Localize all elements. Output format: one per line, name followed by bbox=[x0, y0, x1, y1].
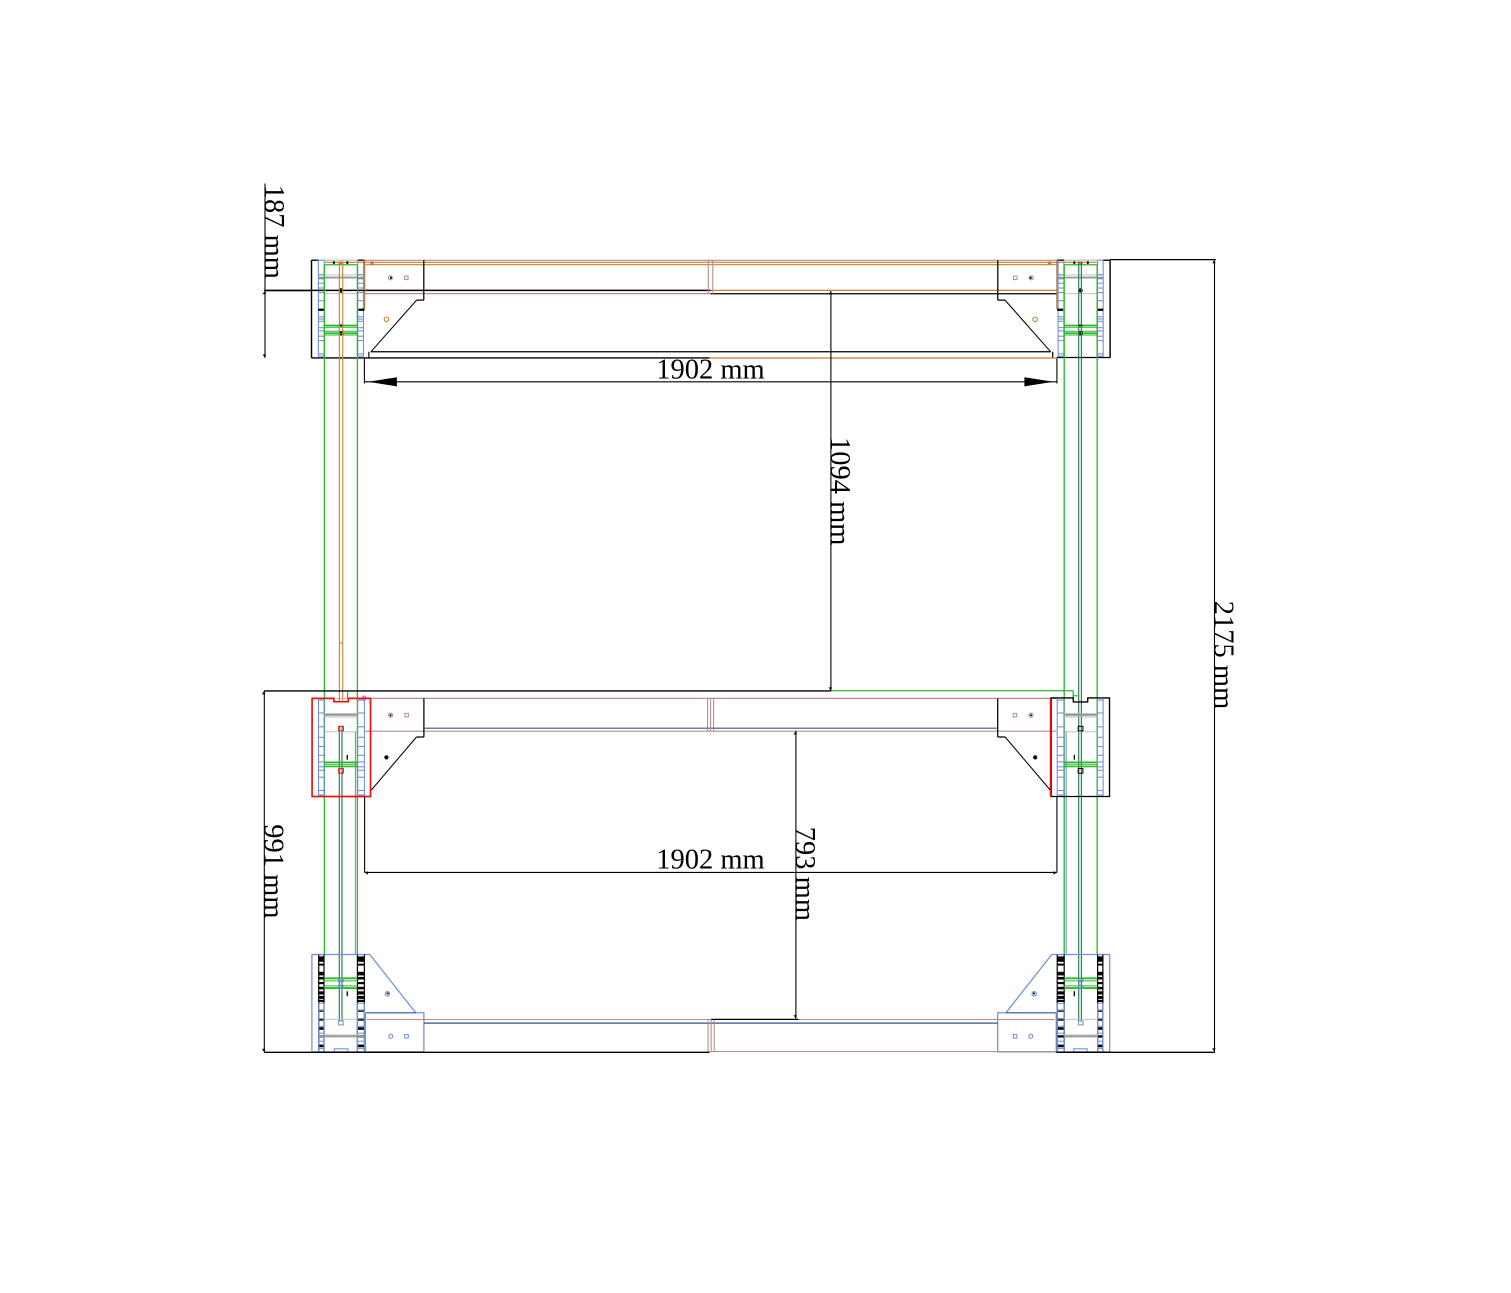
svg-text:991 mm: 991 mm bbox=[257, 824, 288, 918]
svg-text:187 mm: 187 mm bbox=[258, 185, 289, 279]
svg-text:793 mm: 793 mm bbox=[789, 827, 820, 921]
svg-text:1902 mm: 1902 mm bbox=[656, 355, 764, 386]
svg-text:2175 mm: 2175 mm bbox=[1208, 601, 1239, 709]
svg-text:1902 mm: 1902 mm bbox=[656, 845, 764, 876]
svg-text:1094 mm: 1094 mm bbox=[824, 437, 855, 545]
